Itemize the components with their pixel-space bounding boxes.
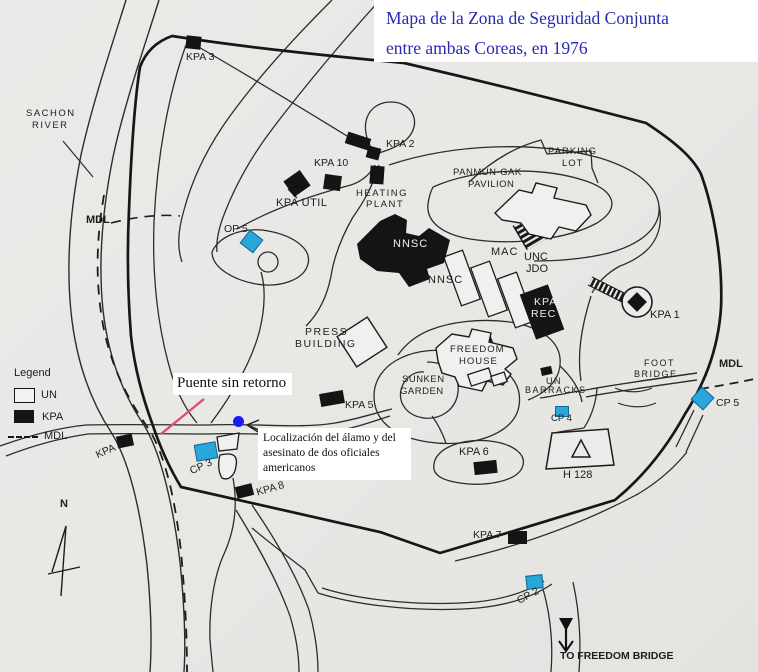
kpa-10-marker: [323, 174, 342, 191]
un-barracks-building-3: [540, 366, 552, 376]
kpa-6-marker: [473, 460, 497, 475]
cp3-south-road: [210, 478, 235, 672]
heating-plant-label-1: HEATING: [356, 188, 408, 199]
sachon-river-label-2: RIVER: [32, 120, 69, 131]
kpa6-feeder-road: [432, 416, 446, 443]
op5-loop-pond: [258, 252, 278, 272]
kpa-1-label: KPA 1: [650, 309, 680, 321]
legend-mdl-label: MDL: [44, 430, 67, 442]
kpa-5-label: KPA 5: [345, 399, 373, 411]
kpa-2-label: KPA 2: [386, 138, 414, 150]
north-label: N: [60, 498, 68, 510]
legend-un-label: UN: [41, 389, 57, 401]
foot-bridge-line2: [586, 380, 697, 397]
kpa-util-label: KPA UTIL: [276, 197, 327, 209]
traffic-island-1: [217, 433, 239, 451]
h128-label: H 128: [563, 469, 592, 481]
kpa3-to-kpa2-road: [197, 46, 347, 136]
mdl-east-label: MDL: [719, 358, 743, 370]
to-freedom-bridge-label: TO FREEDOM BRIDGE: [560, 650, 674, 662]
kpa-7-label: KPA 7: [473, 529, 501, 541]
inner-west-road: [154, 45, 197, 423]
bridge-highlight-line: [161, 399, 204, 434]
traffic-island-2: [219, 454, 237, 479]
heating-plant-label-2: PLANT: [366, 199, 404, 210]
press-building-label-1: PRESS: [305, 326, 348, 338]
heating-plant-marker: [369, 166, 384, 185]
kpa-3-label: KPA 3: [186, 51, 214, 63]
jsa-map-1976: KPA 3 SACHON RIVER MDL OP 5 KPA 2 KPA 10…: [0, 0, 758, 672]
h128-building: [546, 429, 614, 469]
bridge-to-op5-road: [211, 272, 264, 423]
map-title-box: Mapa de la Zona de Seguridad Conjunta en…: [374, 0, 758, 62]
bridge-of-no-return-annotation: Puente sin retorno: [173, 373, 292, 395]
unc-jdo-label-2: JDO: [526, 263, 548, 275]
panmungak-label-1: PANMUN-GAK: [453, 167, 522, 178]
legend-heading: Legend: [14, 367, 51, 379]
kpa-6-label: KPA 6: [459, 446, 489, 458]
cp-4-label: CP 4: [551, 413, 572, 424]
kpa-rec-label-2: REC: [531, 308, 556, 320]
legend-kpa-swatch: [14, 410, 34, 423]
kpa-7-marker: [508, 531, 527, 544]
op-5-label: OP 5: [224, 223, 248, 235]
incident-line-2: asesinato de dos oficiales: [263, 446, 409, 461]
barracks-road1: [560, 366, 582, 402]
map-title-line-2: entre ambas Coreas, en 1976: [386, 36, 758, 60]
mdl-dashed-line-east: [700, 379, 754, 389]
sunken-garden-label-1: SUNKEN: [402, 374, 445, 385]
sachon-river-west-bank: [69, 0, 151, 672]
east-road-to-footbridge: [579, 296, 591, 381]
parking-lot-label-2: LOT: [562, 158, 583, 169]
legend-mdl-swatch: [8, 436, 38, 438]
kpa8-south-road2: [236, 510, 299, 672]
kpa8-south-road1: [252, 505, 318, 672]
freedom-house-label-2: HOUSE: [459, 356, 498, 367]
sunken-garden-label-2: GARDEN: [400, 386, 444, 397]
cp2-road-west-edge: [543, 589, 552, 672]
sachon-river-label-1: SACHON: [26, 108, 76, 119]
foot-bridge-label-1: FOOT: [644, 358, 675, 368]
sachon-river-east-bank: [101, 0, 185, 672]
legend-kpa-label: KPA: [42, 411, 63, 423]
map-linework: [0, 0, 758, 672]
foot-bridge-bracket-bottom: [618, 403, 656, 407]
mac-label: MAC: [491, 246, 518, 258]
press-building-label-2: BUILDING: [295, 338, 357, 350]
legend-un-swatch: [14, 388, 35, 403]
hairpin-road-inner: [322, 581, 544, 603]
incident-line-3: americanos: [263, 461, 409, 476]
cp-5-label: CP 5: [716, 397, 739, 409]
nnsc-label: NNSC: [428, 274, 463, 286]
kpa-3-marker: [185, 35, 201, 49]
mdl-west-label: MDL: [86, 214, 110, 226]
nnsc-label-on-building: NNSC: [393, 238, 428, 250]
incident-line-1: Localización del álamo y del: [263, 431, 409, 446]
freedom-house-label-1: FREEDOM: [450, 344, 505, 355]
incident-dot: [233, 416, 244, 427]
map-title-line-1: Mapa de la Zona de Seguridad Conjunta: [386, 6, 758, 30]
north-compass-arrow: [48, 526, 80, 596]
panmungak-building: [495, 183, 591, 239]
parking-lot-label-1: PARKING: [548, 146, 597, 157]
kpa-10-label: KPA 10: [314, 157, 348, 169]
un-barracks-label-2: BARRACKS: [525, 385, 587, 395]
unc-jdo-label-1: UNC: [524, 251, 548, 263]
foot-bridge-label-2: BRIDGE: [634, 369, 678, 379]
kpa-rec-label-1: KPA: [534, 296, 557, 308]
poplar-incident-annotation: Localización del álamo y del asesinato d…: [258, 428, 411, 480]
panmungak-label-2: PAVILION: [468, 179, 514, 190]
mdl-label-dash: [111, 215, 180, 223]
